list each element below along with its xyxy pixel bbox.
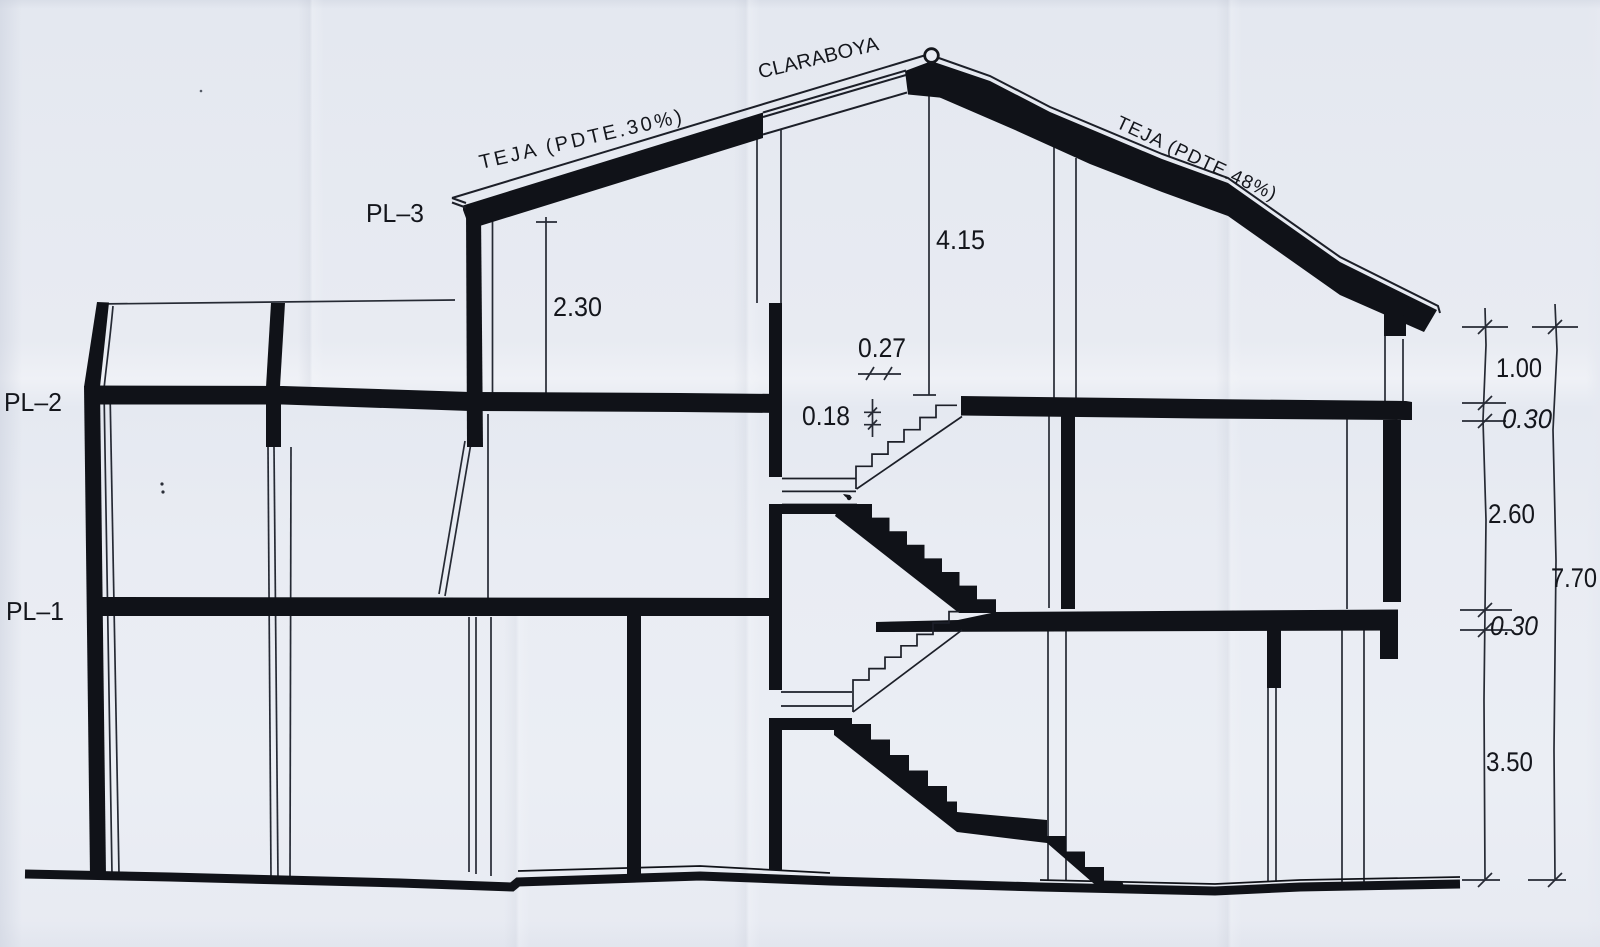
svg-text:0.30: 0.30	[1490, 611, 1538, 641]
svg-text:4.15: 4.15	[936, 225, 985, 255]
svg-text:1.00: 1.00	[1496, 353, 1542, 383]
svg-text:0.18: 0.18	[802, 401, 850, 431]
svg-text:7.70: 7.70	[1551, 563, 1597, 593]
svg-text:PL–3: PL–3	[366, 198, 424, 228]
svg-text:2.60: 2.60	[1488, 499, 1535, 529]
svg-text:PL–2: PL–2	[4, 387, 62, 417]
svg-text:2.30: 2.30	[553, 292, 602, 322]
svg-text:CLARABOYA: CLARABOYA	[756, 33, 881, 83]
svg-text:PL–1: PL–1	[6, 596, 64, 626]
svg-text:3.50: 3.50	[1486, 747, 1533, 777]
svg-text:0.27: 0.27	[858, 333, 906, 363]
svg-text:0.30: 0.30	[1502, 404, 1552, 434]
